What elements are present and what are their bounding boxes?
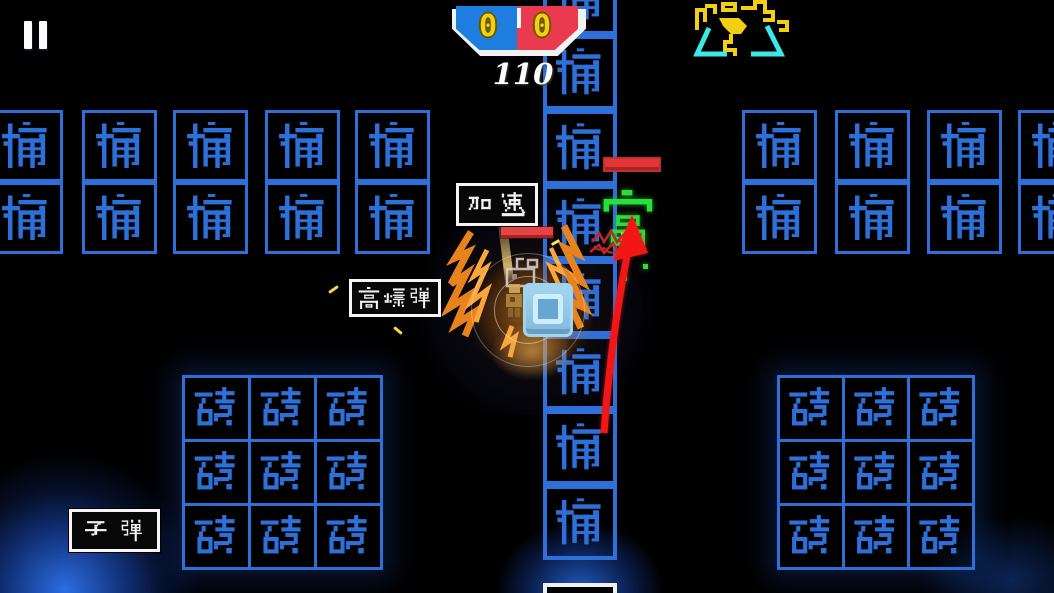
brick-block bbox=[182, 503, 251, 570]
brick-block bbox=[907, 375, 975, 442]
barrel-block bbox=[173, 110, 248, 182]
barrel-block bbox=[355, 110, 430, 182]
barrel-block bbox=[927, 182, 1002, 254]
barrel-block bbox=[82, 110, 157, 182]
brick-block bbox=[842, 439, 910, 506]
barrel-block bbox=[173, 182, 248, 254]
barrel-block bbox=[543, 485, 617, 560]
barrel-block bbox=[742, 182, 817, 254]
spark bbox=[328, 285, 339, 294]
glyph-su bbox=[501, 192, 526, 217]
game-stage: 加速 高爆弹 子弹 0 0 110 bbox=[0, 0, 1054, 593]
barrel-block bbox=[1018, 110, 1054, 182]
barrel-block bbox=[0, 182, 63, 254]
barrel-block bbox=[835, 110, 910, 182]
barrel-block bbox=[0, 110, 63, 182]
brick-block bbox=[248, 503, 317, 570]
brick-block bbox=[777, 439, 845, 506]
tank-core bbox=[533, 294, 563, 324]
pause-bar bbox=[24, 21, 32, 49]
brick-block bbox=[842, 503, 910, 570]
skill-label-high-explosive[interactable]: 高爆弹 bbox=[349, 279, 441, 317]
brick-block bbox=[314, 439, 383, 506]
brick-block bbox=[777, 503, 845, 570]
mech-emblem-icon bbox=[683, 0, 795, 62]
glyph-zi bbox=[85, 519, 108, 542]
barrel-block bbox=[1018, 182, 1054, 254]
brick-block bbox=[182, 439, 251, 506]
barrel-block bbox=[265, 110, 340, 182]
player-tank bbox=[523, 283, 573, 337]
brick-block bbox=[248, 375, 317, 442]
brick-block bbox=[777, 375, 845, 442]
glyph-dan bbox=[410, 287, 432, 309]
barrel-block bbox=[543, 110, 617, 185]
skill-label-accelerate[interactable]: 加速 bbox=[456, 183, 538, 226]
pause-button[interactable] bbox=[24, 19, 54, 51]
barrel-block bbox=[742, 110, 817, 182]
spark bbox=[393, 326, 403, 335]
glyph-gao bbox=[358, 287, 380, 309]
barrel-block bbox=[82, 182, 157, 254]
mystery-box bbox=[543, 583, 617, 593]
target-arrow-icon bbox=[586, 203, 658, 438]
barrel-block bbox=[835, 182, 910, 254]
glyph-dan2 bbox=[121, 519, 144, 542]
skill-label-bullet[interactable]: 子弹 bbox=[69, 509, 160, 552]
enemy-hp-bar bbox=[603, 157, 661, 172]
brick-block bbox=[182, 375, 251, 442]
glyph-jia bbox=[468, 192, 493, 217]
timer-text: 110 bbox=[483, 57, 563, 91]
brick-block bbox=[314, 503, 383, 570]
brick-block bbox=[314, 375, 383, 442]
score-right: 0 bbox=[520, 9, 564, 44]
barrel-block bbox=[265, 182, 340, 254]
boost-hp-bar bbox=[501, 227, 553, 238]
brick-block bbox=[907, 503, 975, 570]
score-left: 0 bbox=[466, 9, 510, 44]
brick-block bbox=[248, 439, 317, 506]
pause-bar bbox=[39, 21, 47, 49]
barrel-block bbox=[927, 110, 1002, 182]
glyph-bao bbox=[384, 287, 406, 309]
brick-block bbox=[907, 439, 975, 506]
brick-block bbox=[842, 375, 910, 442]
